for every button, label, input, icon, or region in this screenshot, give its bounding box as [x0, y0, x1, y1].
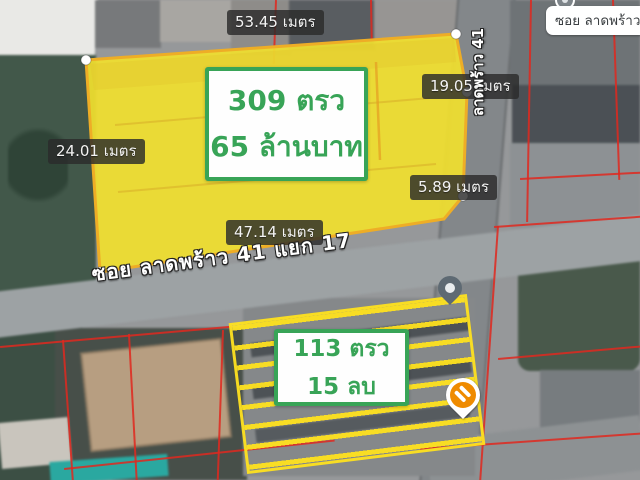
- satellite-map-view: 53.45 เมตร 19.05 เมตร 24.01 เมตร 5.89 เม…: [0, 0, 640, 480]
- lower-plot-area: 113 ตรว: [278, 331, 405, 367]
- upper-plot-price: 65 ล้านบาท: [209, 125, 364, 169]
- lower-plot-info-box: 113 ตรว 15 ลบ: [274, 329, 409, 406]
- measurement-right-lower: 5.89 เมตร: [410, 175, 497, 200]
- measurement-top: 53.45 เมตร: [227, 10, 324, 35]
- upper-plot-area: 309 ตรว: [209, 79, 364, 123]
- lower-plot-price: 15 ลบ: [278, 369, 405, 405]
- soi-lat-phrao-map-label[interactable]: ซอย ลาดพร้าว: [546, 6, 640, 35]
- upper-plot-info-box: 309 ตรว 65 ล้านบาท: [205, 67, 368, 181]
- vertical-road-label: ลาดพร้าว 41: [466, 0, 490, 147]
- measurement-left: 24.01 เมตร: [48, 139, 145, 164]
